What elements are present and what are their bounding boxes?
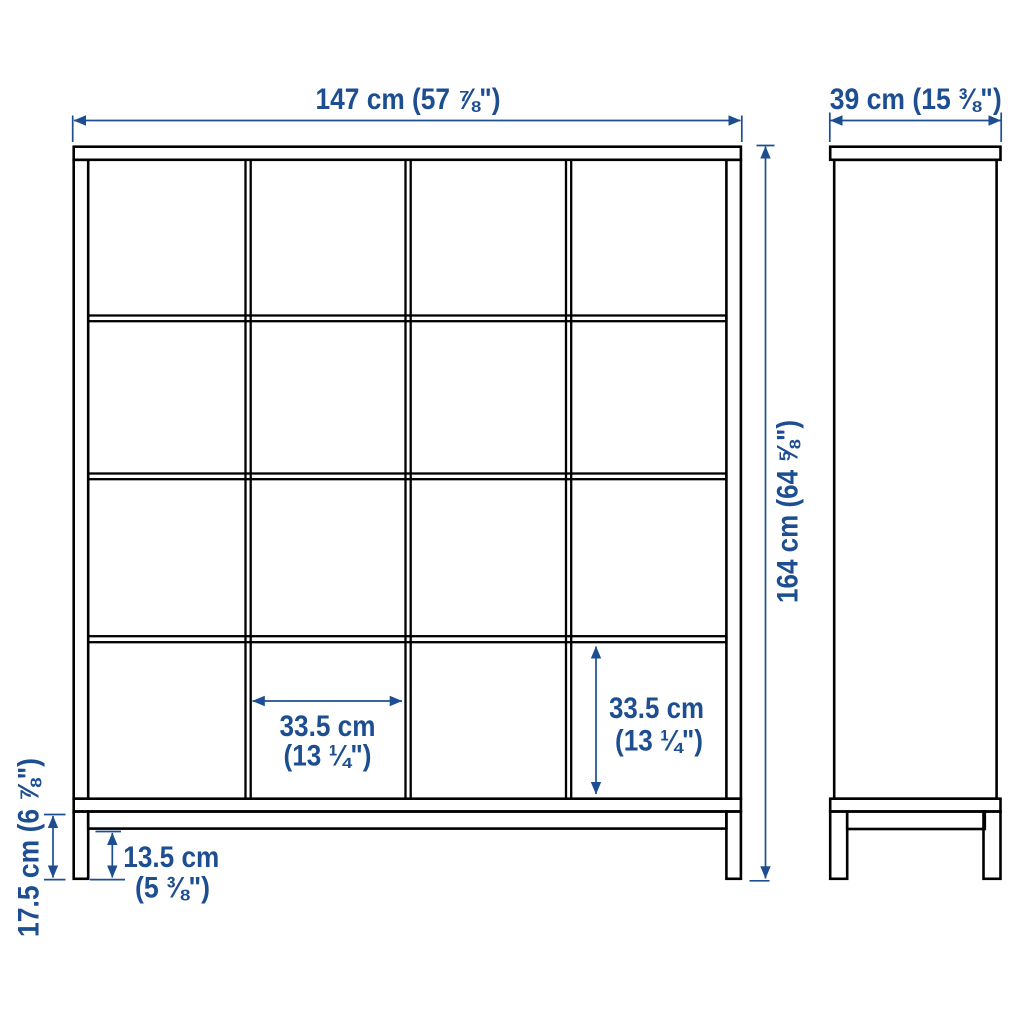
svg-text:164 cm (64 ⅝"): 164 cm (64 ⅝") (772, 420, 805, 603)
svg-text:(13 ¼"): (13 ¼") (284, 740, 372, 773)
svg-text:(13 ¼"): (13 ¼") (615, 725, 703, 758)
svg-text:147 cm (57 ⅞"): 147 cm (57 ⅞") (316, 83, 501, 116)
svg-text:(5 ⅜"): (5 ⅜") (135, 872, 210, 905)
svg-text:33.5 cm: 33.5 cm (609, 692, 704, 725)
svg-text:33.5 cm: 33.5 cm (280, 710, 376, 743)
svg-text:17.5 cm (6 ⅞"): 17.5 cm (6 ⅞") (13, 758, 46, 937)
svg-text:39 cm (15 ⅜"): 39 cm (15 ⅜") (830, 83, 1002, 116)
svg-text:13.5 cm: 13.5 cm (123, 841, 219, 874)
